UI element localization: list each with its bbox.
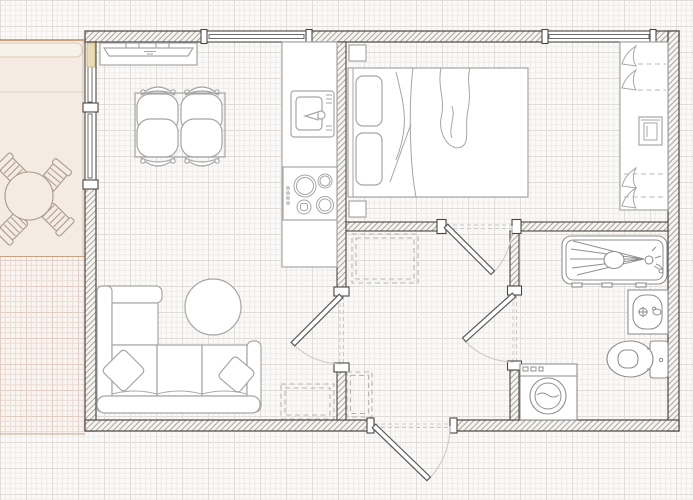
patio-tiled-area — [0, 257, 85, 433]
dining-table[interactable] — [135, 93, 225, 157]
floor-plan-drawing — [0, 0, 693, 500]
washbasin[interactable] — [628, 290, 668, 334]
patio — [0, 40, 85, 434]
kitchen-counter[interactable] — [282, 42, 337, 267]
patio-step-band — [0, 43, 82, 57]
bathtub-shower[interactable] — [562, 236, 667, 287]
shower-head-icon — [645, 256, 653, 264]
bed-pillow — [356, 76, 382, 126]
wardrobe[interactable] — [620, 42, 668, 210]
living-window[interactable] — [83, 42, 98, 189]
cooktop[interactable] — [283, 167, 337, 220]
round-coffee-table[interactable] — [185, 279, 241, 335]
balcony-door-leaf[interactable] — [87, 43, 95, 67]
toilet[interactable] — [607, 341, 668, 378]
dining-set[interactable] — [135, 87, 225, 166]
washing-machine[interactable] — [520, 364, 577, 420]
patio-round-table[interactable] — [5, 172, 53, 220]
wardrobe-safe — [639, 117, 662, 145]
tub-drain — [604, 252, 624, 269]
bed-pillow — [356, 133, 382, 185]
kitchen-sink[interactable] — [291, 91, 334, 137]
tv-console[interactable] — [100, 43, 197, 65]
nightstand[interactable] — [349, 201, 366, 217]
nightstand[interactable] — [349, 45, 366, 61]
double-bed[interactable] — [348, 68, 528, 197]
floor-plan-canvas — [0, 0, 693, 500]
